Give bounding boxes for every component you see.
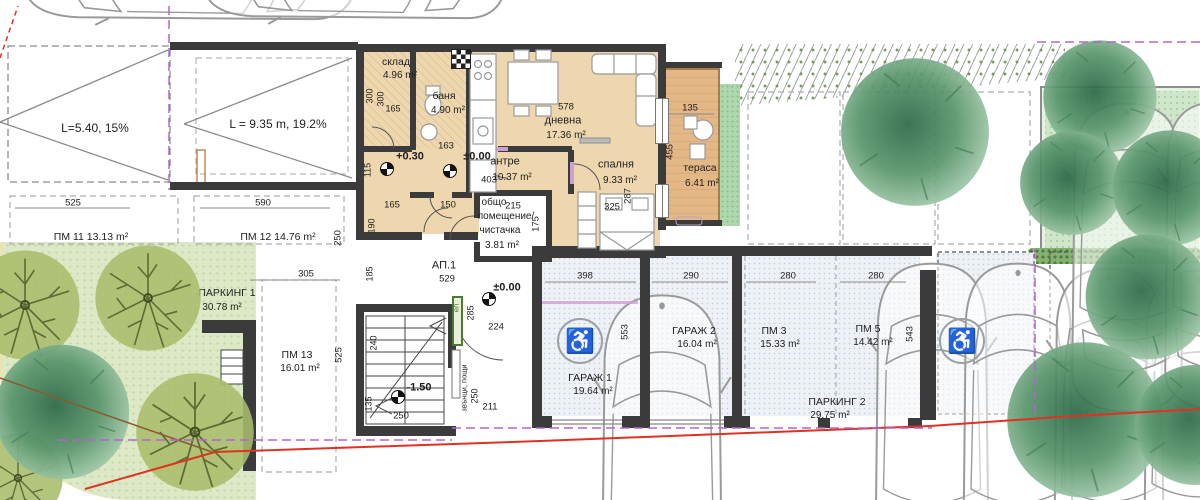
label-g2-name: ГАРАЖ 2 bbox=[672, 326, 716, 337]
label-dim-115: 115 bbox=[364, 163, 373, 177]
label-dim-185: 185 bbox=[366, 266, 375, 281]
label-g2-area: 16.04 m² bbox=[677, 340, 716, 350]
label-ramp-left: L=5.40, 15% bbox=[61, 122, 129, 134]
label-p2-name: ПАРКИНГ 2 bbox=[808, 397, 865, 408]
label-storage-area: 4.96 m² bbox=[383, 71, 417, 81]
label-dim-285: 285 bbox=[467, 305, 476, 320]
level-marker-icon bbox=[482, 292, 496, 306]
wheelchair-icon: ♿ bbox=[557, 318, 603, 364]
window-living-terrace bbox=[655, 98, 669, 144]
plan-drawing bbox=[0, 0, 1200, 500]
car-pm12 bbox=[203, 0, 506, 24]
window-bedroom-terrace bbox=[655, 184, 669, 218]
label-level-zero: ±0.00 bbox=[463, 152, 490, 163]
label-dim-250b: 250 bbox=[471, 388, 480, 403]
label-ramp-right: L = 9.35 m, 19.2% bbox=[229, 118, 326, 130]
label-p2-area: 29.75 m² bbox=[810, 411, 849, 421]
label-dim-300b: 300 bbox=[377, 91, 386, 106]
exterior-steps bbox=[221, 350, 243, 384]
label-pm3-dim: 280 bbox=[780, 271, 796, 281]
label-dim-224: 224 bbox=[488, 322, 504, 332]
label-unit-dim: 529 bbox=[439, 274, 455, 284]
label-bedroom-name: спалня bbox=[598, 160, 634, 171]
label-bath-name: баня bbox=[432, 91, 455, 102]
label-pm3-area: 15.33 m² bbox=[760, 340, 799, 350]
label-common-dim-h: 175 bbox=[531, 216, 541, 232]
label-pm5-name: ПМ 5 bbox=[855, 324, 880, 335]
label-g1-depth: 553 bbox=[620, 324, 630, 340]
label-level-zero2: ±0.00 bbox=[493, 283, 520, 294]
label-common-2: помещение/ bbox=[478, 212, 535, 222]
label-living-dim: 578 bbox=[558, 102, 574, 112]
label-level-stair: -1.50 bbox=[406, 383, 431, 394]
label-dim-150: 150 bbox=[440, 200, 456, 210]
label-dim-135: 135 bbox=[365, 396, 374, 411]
label-living-name: дневна bbox=[545, 116, 582, 127]
ramp-left bbox=[0, 46, 170, 182]
label-dim-250a: 250 bbox=[393, 411, 409, 421]
label-common-dim-w: 215 bbox=[505, 201, 521, 211]
label-pm12-dim: 590 bbox=[255, 198, 271, 208]
site-plan: ♿ ♿ L=5.40, 15% L = 9.35 m, 19.2% склад … bbox=[0, 0, 1200, 500]
label-p1-area: 30.78 m² bbox=[202, 303, 241, 313]
label-unit: АП.1 bbox=[432, 261, 456, 272]
label-pm11: ПМ 11 13.13 m² bbox=[54, 232, 128, 243]
label-dim-190: 190 bbox=[368, 218, 377, 233]
label-pm5-dim: 280 bbox=[868, 271, 884, 281]
label-dim-211: 211 bbox=[482, 402, 497, 412]
wheelchair-glyph: ♿ bbox=[947, 327, 977, 356]
label-terrace-dim-h: 455 bbox=[665, 144, 675, 160]
label-pm11-dim: 525 bbox=[65, 198, 81, 208]
wheelchair-glyph: ♿ bbox=[565, 327, 595, 356]
label-storage-name: склад bbox=[382, 57, 410, 68]
label-p1-dim: 305 bbox=[298, 269, 314, 279]
label-dim-300a: 300 bbox=[366, 88, 375, 103]
label-pm13-dim: 525 bbox=[334, 347, 344, 363]
level-marker-icon bbox=[380, 162, 394, 176]
shaft-hatch bbox=[451, 49, 471, 69]
label-pm13-name: ПМ 13 bbox=[282, 350, 313, 361]
label-level-entry: +0.30 bbox=[396, 152, 424, 163]
label-terrace-dim-w: 135 bbox=[682, 103, 698, 113]
label-bath-dim: 163 bbox=[438, 141, 454, 151]
label-dim-240: 240 bbox=[370, 335, 379, 350]
label-g1-dim: 398 bbox=[577, 271, 593, 281]
label-pm12: ПМ 12 14.76 m² bbox=[240, 232, 315, 243]
label-el-panel: ел bbox=[452, 304, 460, 312]
label-p1-name: ПАРКИНГ 1 bbox=[198, 288, 255, 299]
label-bath-area: 4.90 m² bbox=[431, 106, 465, 116]
label-bedroom-area: 9.33 m² bbox=[603, 176, 637, 186]
label-hall-area: 10.37 m² bbox=[492, 173, 531, 183]
label-living-area: 17.36 m² bbox=[546, 131, 585, 141]
label-pm3-name: ПМ 3 bbox=[761, 326, 786, 337]
label-terrace-area: 6.41 m² bbox=[685, 179, 719, 189]
wheelchair-icon: ♿ bbox=[939, 318, 985, 364]
label-terrace-name: тераса bbox=[683, 163, 716, 174]
label-g2-dim: 290 bbox=[683, 271, 699, 281]
label-dim-165b: 165 bbox=[384, 200, 400, 210]
level-marker-icon bbox=[391, 390, 405, 404]
label-bed-dim-h: 287 bbox=[623, 188, 633, 204]
label-dim-165a: 165 bbox=[385, 105, 400, 114]
label-pm5-area: 14.42 m² bbox=[853, 338, 892, 348]
label-hall-name: антре bbox=[490, 157, 519, 168]
label-common-3: чистачка bbox=[480, 226, 521, 236]
label-pm13-area: 16.01 m² bbox=[280, 364, 319, 374]
level-marker-icon bbox=[443, 164, 457, 178]
label-g1-name: ГАРАЖ 1 bbox=[568, 373, 612, 384]
label-bells: звънци, пощи bbox=[460, 364, 468, 411]
label-g1-area: 19.64 m² bbox=[573, 387, 612, 397]
label-common-area: 3.81 m² bbox=[485, 241, 519, 251]
label-bed-dim-w: 325 bbox=[604, 202, 620, 212]
label-pm5-depth: 543 bbox=[905, 326, 915, 342]
label-pm12-depth: 250 bbox=[333, 230, 343, 246]
staircase bbox=[366, 316, 446, 424]
label-common-1: общо bbox=[482, 198, 507, 208]
